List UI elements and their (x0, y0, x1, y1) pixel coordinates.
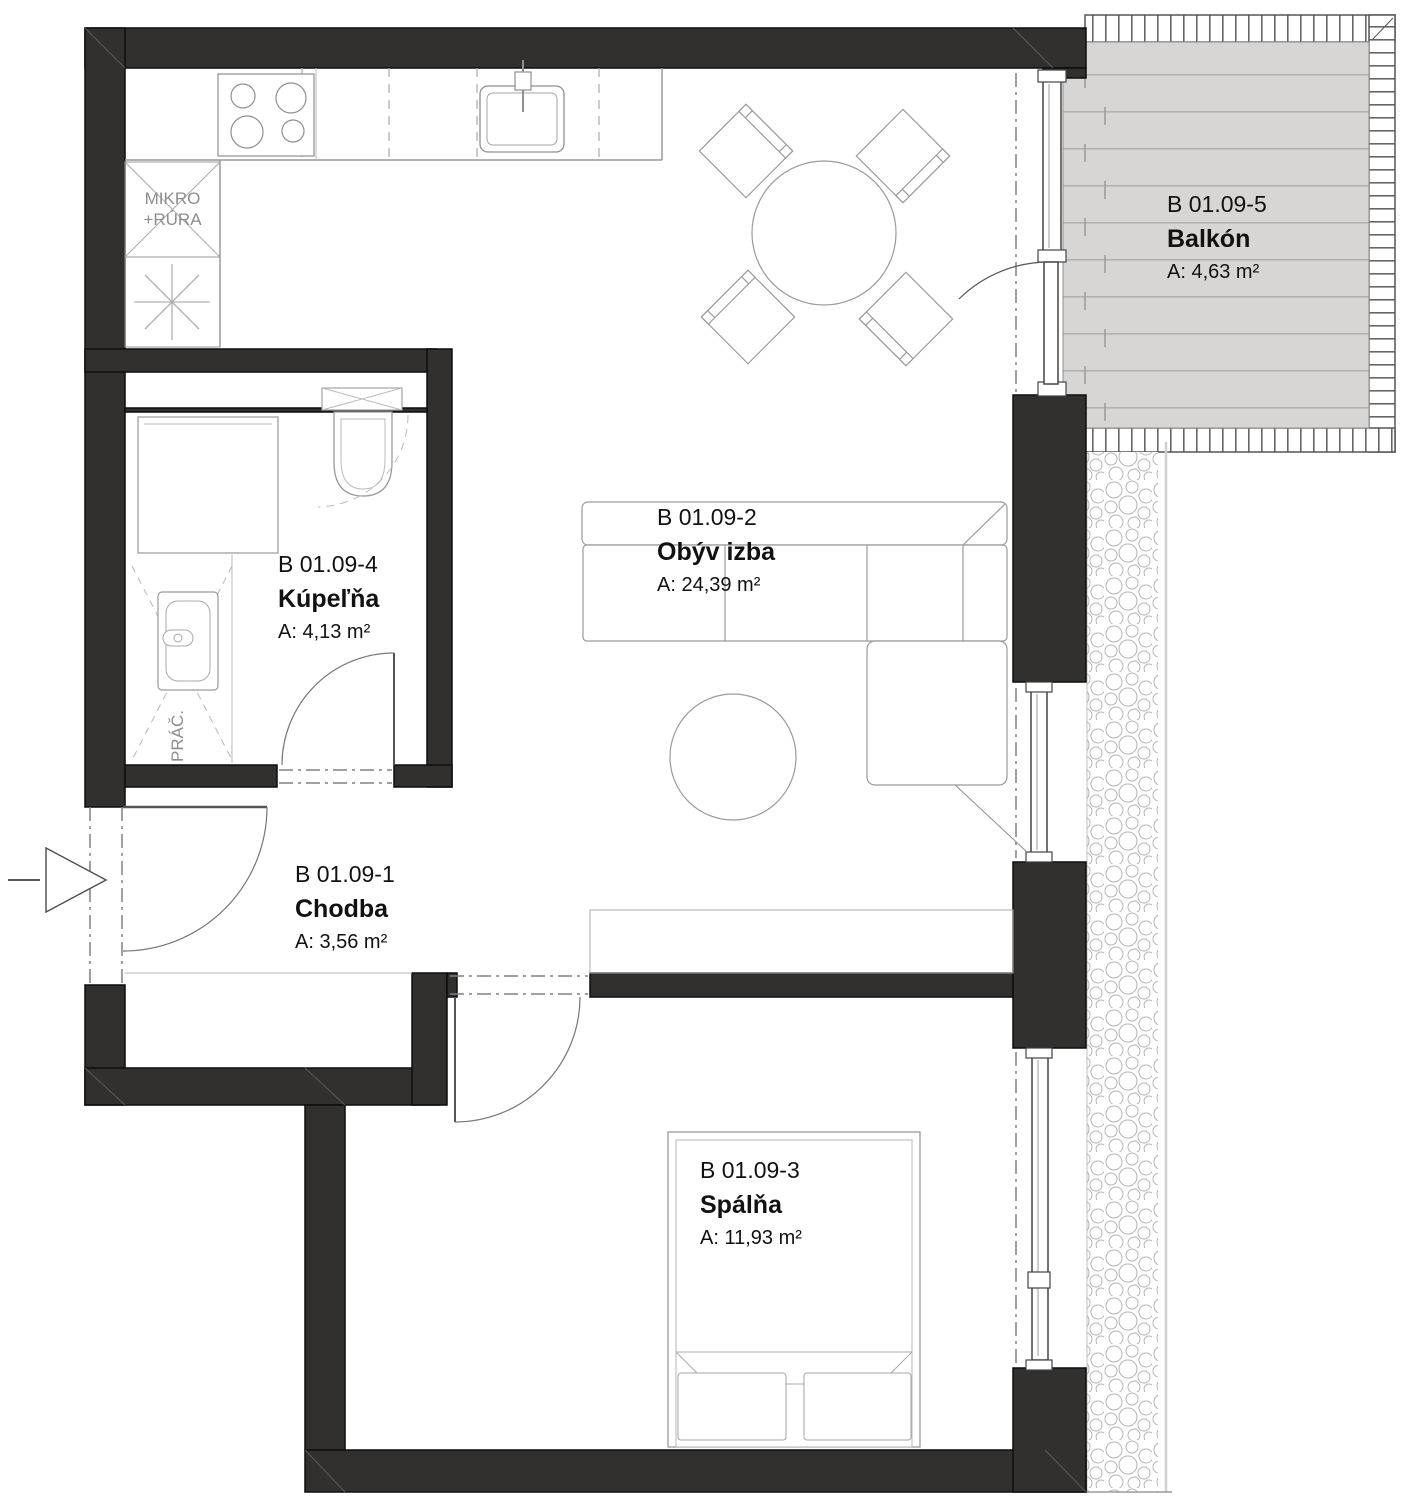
bedroom-door-swing-arc (455, 997, 580, 1122)
room-area: A: 4,13 m² (278, 621, 379, 643)
wall-bath-top (85, 349, 437, 372)
room-id: B 01.09-4 (278, 552, 379, 577)
wall-right-upper (1013, 395, 1086, 682)
microwave-oven-label: MIKRO +RÚRA (125, 188, 220, 230)
balcony-door-leaf (1044, 262, 1058, 384)
room-label-balkon: B 01.09-5 Balkón A: 4,63 m² (1167, 192, 1267, 283)
room-name: Balkón (1167, 226, 1267, 253)
room-id: B 01.09-3 (700, 1158, 802, 1183)
room-id: B 01.09-5 (1167, 192, 1267, 217)
pebble-hatch (1087, 452, 1158, 1492)
washing-machine (158, 592, 218, 690)
sofa-backrest (582, 502, 1007, 545)
window-mullion (1028, 1272, 1050, 1288)
sofa-seats (583, 545, 1007, 641)
wall-bath-right (427, 349, 452, 787)
coffee-table (670, 694, 796, 820)
room-label-obyv-izba: B 01.09-2 Obýv izba A: 24,39 m² (657, 505, 775, 596)
balcony-fixed-window (1043, 80, 1061, 252)
hob (218, 74, 314, 156)
room-name: Kúpeľňa (278, 586, 379, 613)
gravel-strip (1087, 442, 1172, 1492)
wall-left-upper (85, 28, 125, 807)
room-area: A: 3,56 m² (295, 931, 395, 953)
shower (138, 417, 278, 553)
room-label-spalna: B 01.09-3 Spálňa A: 11,93 m² (700, 1158, 802, 1249)
room-area: A: 11,93 m² (700, 1227, 802, 1249)
window-cap (1026, 1048, 1052, 1058)
fridge-symbol (125, 257, 220, 347)
mikro-label-line1: MIKRO (125, 188, 220, 209)
bedroom-window (1026, 1048, 1052, 1370)
room-area: A: 4,63 m² (1167, 261, 1267, 283)
entry-arrow-icon (46, 848, 106, 912)
room-label-kupelna: B 01.09-4 Kúpeľňa A: 4,13 m² (278, 552, 379, 643)
window-cap (1026, 852, 1052, 862)
wall-niche-right (412, 973, 447, 1105)
wall-bedroom-top (590, 973, 1013, 997)
mikro-label-line2: +RÚRA (125, 209, 220, 230)
wall-spine-left (305, 1105, 345, 1450)
washer-label: PRÁČ. (168, 682, 188, 762)
entry-door-swing-arc (123, 807, 267, 951)
window-cap (1038, 70, 1066, 82)
room-name: Chodba (295, 896, 395, 923)
wall-niche-bottom (85, 1068, 440, 1105)
room-id: B 01.09-1 (295, 862, 395, 887)
bedroom-door (455, 997, 580, 1122)
balcony-window-door (959, 70, 1066, 396)
room-name: Obýv izba (657, 539, 775, 566)
balcony-railing-top (1085, 15, 1395, 42)
kitchen-sink (480, 60, 564, 152)
faucet-base (515, 72, 531, 90)
wall-bath-bottom-right (394, 765, 452, 787)
room-label-chodba: B 01.09-1 Chodba A: 3,56 m² (295, 862, 395, 953)
washer-knob (174, 634, 182, 642)
bathroom-door-swing-arc (282, 653, 394, 765)
dining-table (752, 161, 896, 305)
dining-set (699, 104, 952, 365)
wall-bath-bottom-left (125, 765, 277, 787)
room-id: B 01.09-2 (657, 505, 775, 530)
balcony-railing-bottom (1085, 428, 1395, 452)
wall-bottom (305, 1450, 1086, 1492)
toilet (318, 388, 408, 507)
floor-plan: B 01.09-5 Balkón A: 4,63 m² B 01.09-4 Kú… (0, 0, 1412, 1510)
wardrobe (590, 910, 1013, 973)
balcony-railing-right (1369, 15, 1395, 452)
sofa-chaise (867, 641, 1007, 785)
pillow-left (678, 1373, 786, 1440)
pillow-right (804, 1373, 911, 1440)
window-cap (1026, 1360, 1052, 1370)
dining-chair-se (859, 272, 952, 365)
window-cap (1026, 682, 1052, 692)
balcony-door-swing-arc (959, 262, 1050, 299)
wall-right-lower (1013, 1368, 1086, 1492)
toilet-bowl (334, 412, 392, 496)
room-area: A: 24,39 m² (657, 574, 775, 596)
wall-top (85, 28, 1086, 68)
living-window-frame (1031, 690, 1047, 854)
wall-right-middle (1013, 862, 1086, 1048)
bedroom-window-frame (1032, 1056, 1048, 1360)
room-name: Spálňa (700, 1192, 802, 1219)
window-cap (1038, 250, 1066, 262)
bathroom-door (282, 653, 394, 765)
entry-door (8, 807, 267, 951)
